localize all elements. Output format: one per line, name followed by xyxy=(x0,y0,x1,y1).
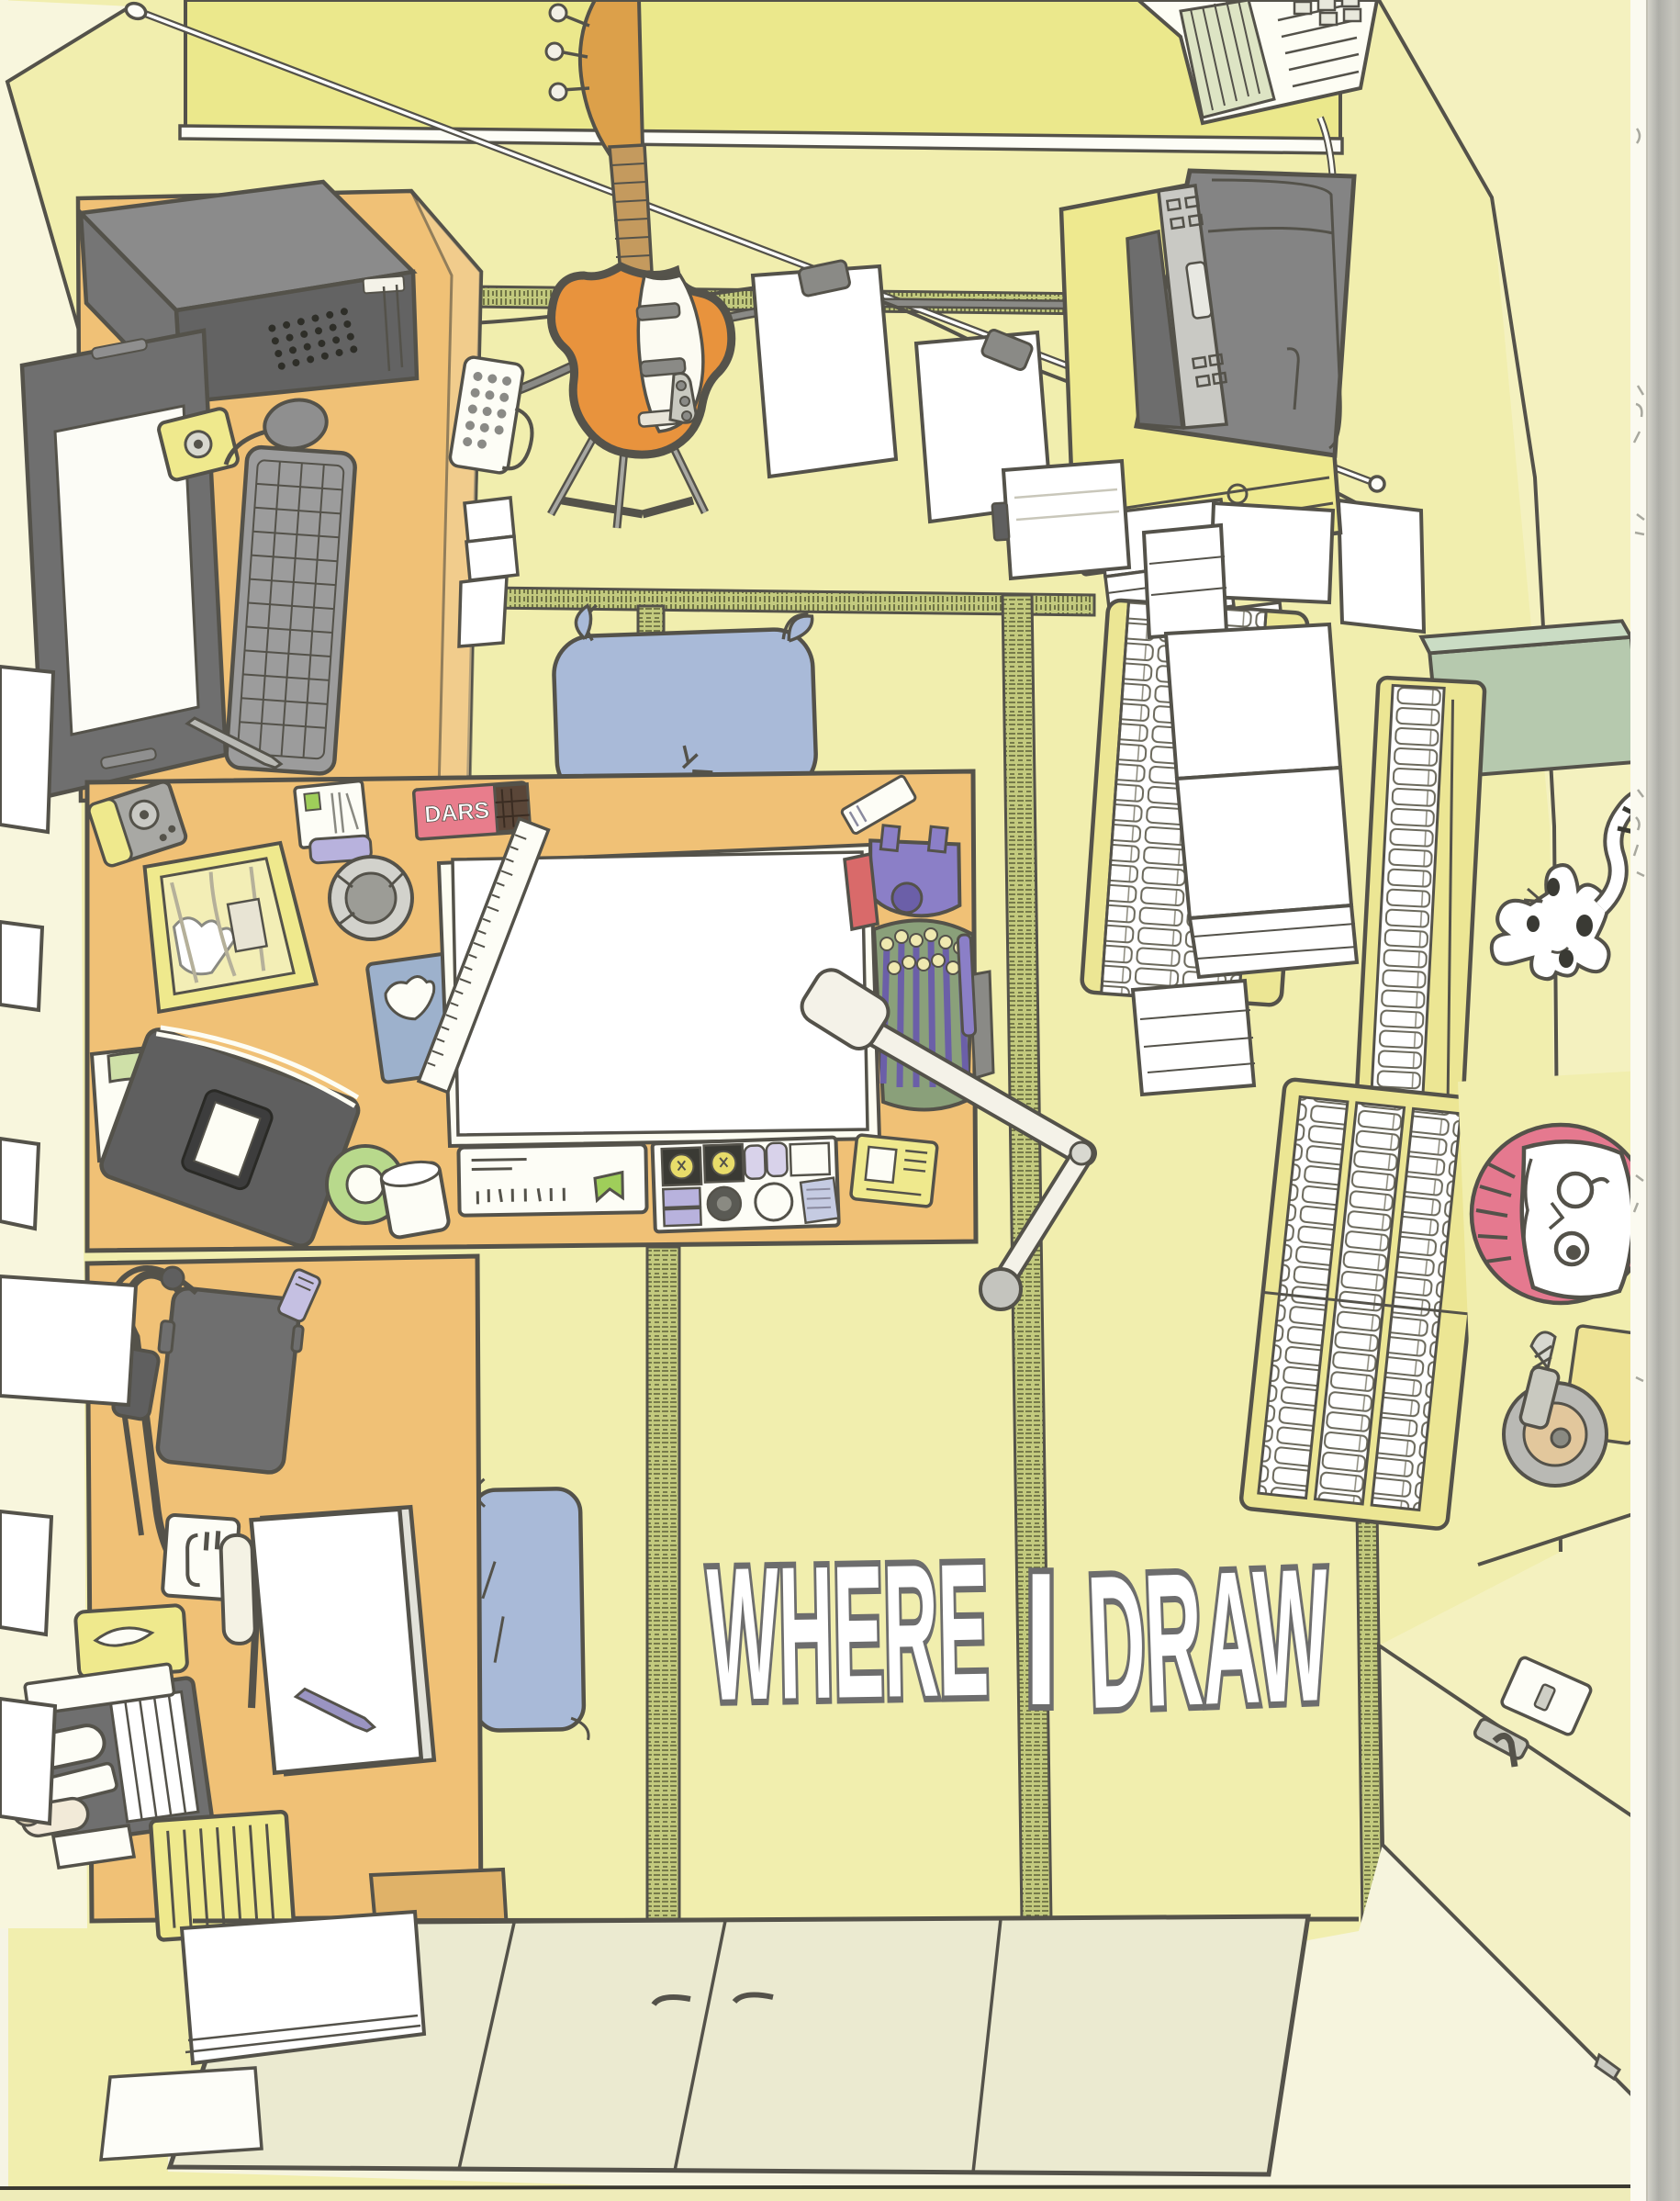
svg-text:DARS: DARS xyxy=(423,798,490,828)
svg-text:DRAW: DRAW xyxy=(1085,1529,1333,1748)
svg-text:WHERE: WHERE xyxy=(706,1524,991,1740)
svg-text:I: I xyxy=(1025,1533,1058,1745)
